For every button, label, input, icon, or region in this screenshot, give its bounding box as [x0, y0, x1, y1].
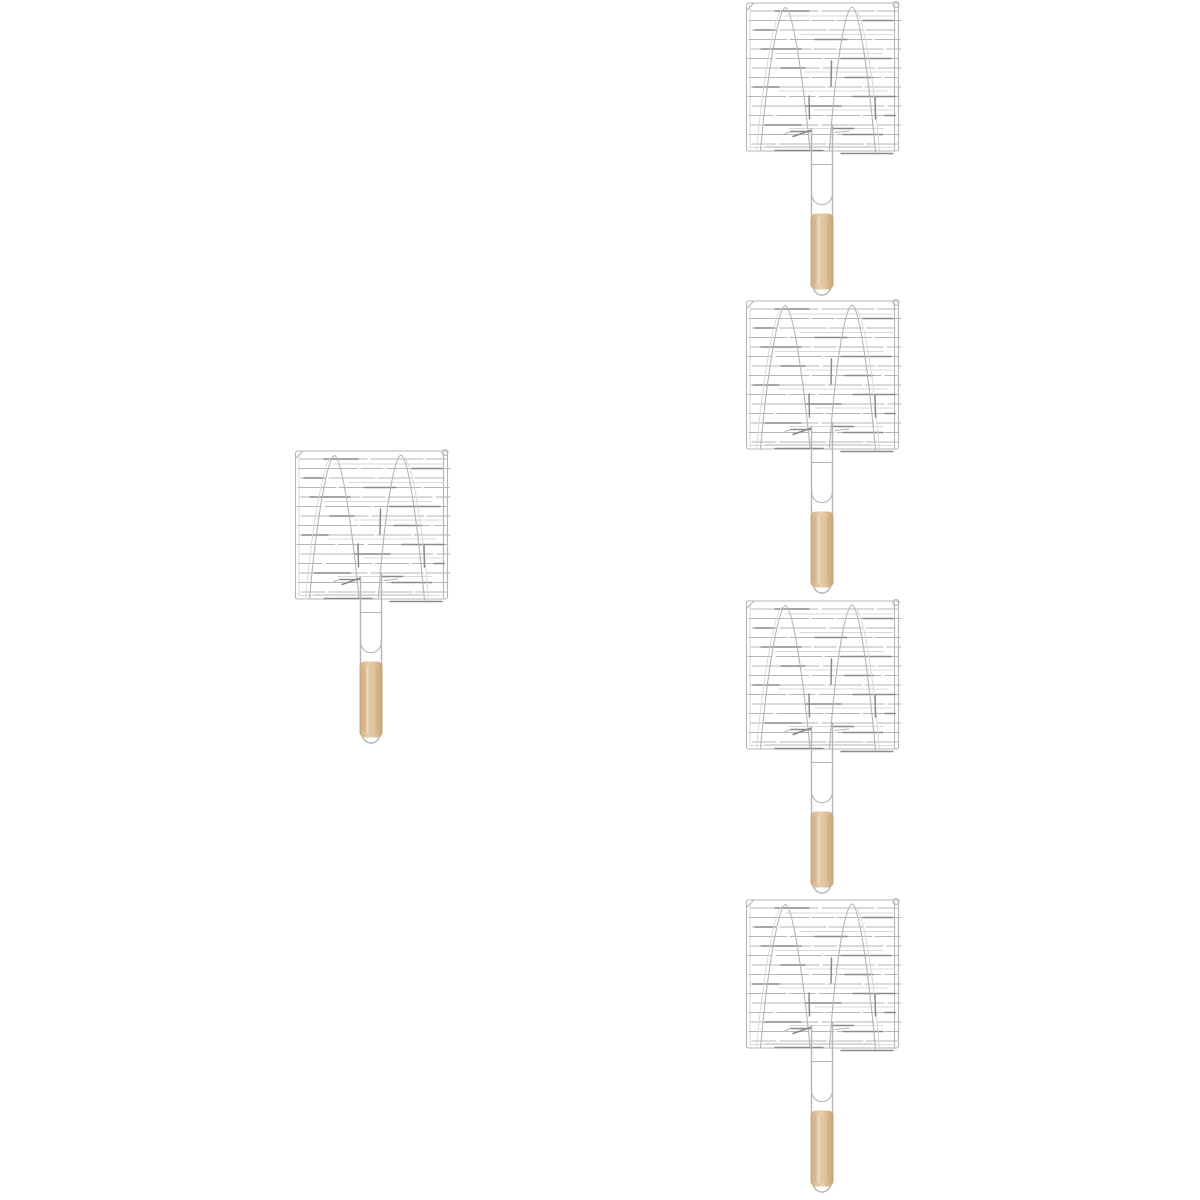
grill-baskets-photo [0, 0, 1200, 1200]
grill-basket-left [296, 450, 451, 744]
product-image [0, 0, 1200, 1200]
grill-basket-right-2 [747, 300, 902, 594]
grill-basket-right-3 [747, 600, 902, 894]
grill-basket-right-4 [747, 899, 902, 1193]
grill-basket-right-1 [747, 2, 902, 296]
